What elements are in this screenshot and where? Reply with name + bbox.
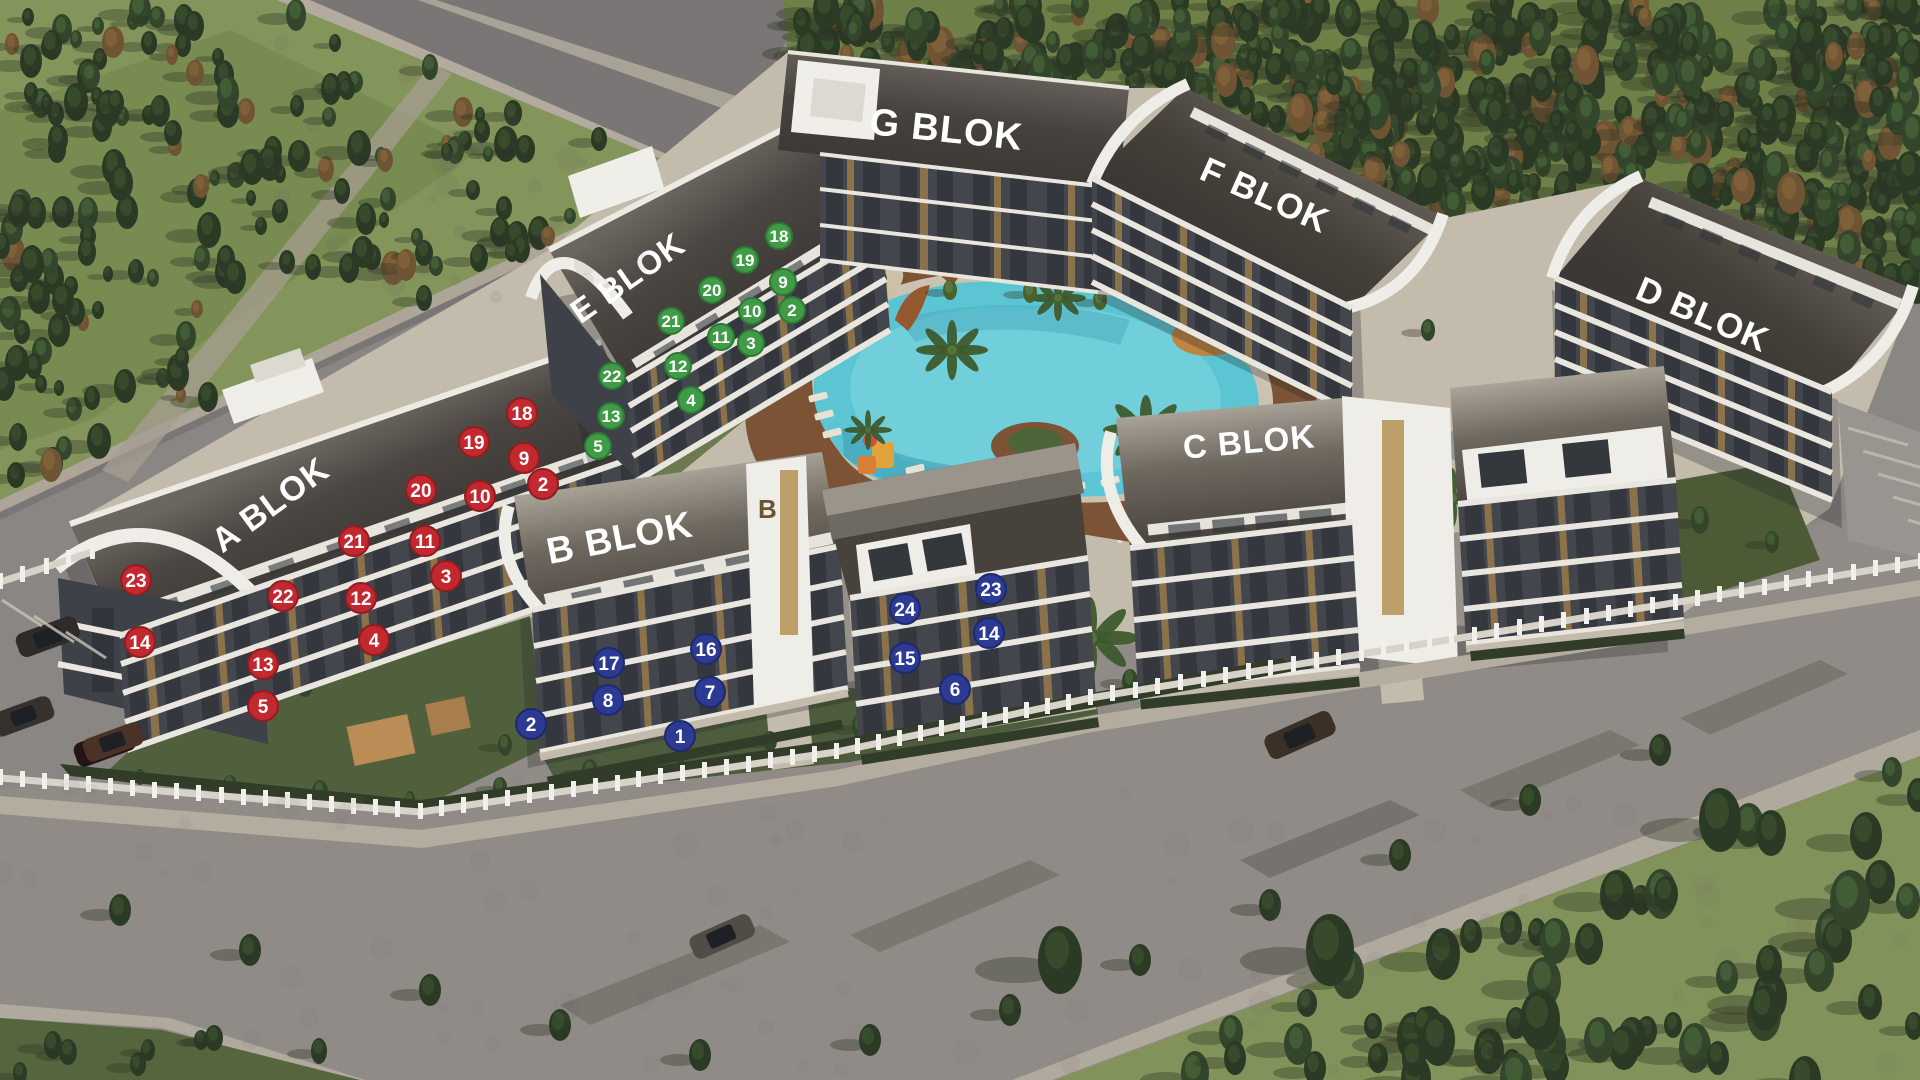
svg-text:14: 14	[129, 633, 151, 654]
svg-text:11: 11	[415, 532, 436, 553]
svg-text:4: 4	[369, 631, 380, 652]
svg-text:16: 16	[695, 640, 716, 661]
svg-text:9: 9	[519, 449, 530, 470]
svg-text:18: 18	[511, 404, 532, 425]
svg-text:10: 10	[469, 487, 490, 508]
svg-text:20: 20	[703, 281, 722, 300]
svg-text:2: 2	[526, 715, 537, 736]
svg-text:11: 11	[712, 328, 730, 347]
svg-text:5: 5	[258, 697, 269, 718]
svg-text:21: 21	[662, 312, 681, 331]
svg-text:12: 12	[350, 589, 371, 610]
svg-text:2: 2	[787, 301, 796, 320]
svg-text:19: 19	[463, 433, 484, 454]
svg-text:4: 4	[686, 391, 696, 410]
svg-text:9: 9	[778, 273, 787, 292]
svg-text:19: 19	[736, 251, 755, 270]
svg-text:24: 24	[894, 600, 916, 621]
svg-text:14: 14	[978, 624, 1000, 645]
svg-text:17: 17	[598, 654, 619, 675]
svg-text:1: 1	[675, 727, 686, 748]
svg-text:22: 22	[272, 587, 293, 608]
svg-text:20: 20	[410, 481, 431, 502]
svg-text:3: 3	[441, 567, 452, 588]
svg-text:13: 13	[252, 655, 273, 676]
svg-text:22: 22	[603, 367, 622, 386]
svg-text:7: 7	[705, 683, 716, 704]
svg-text:5: 5	[593, 437, 602, 456]
svg-text:3: 3	[746, 334, 755, 353]
svg-text:21: 21	[343, 532, 365, 553]
svg-text:2: 2	[538, 475, 549, 496]
svg-text:15: 15	[894, 649, 916, 670]
svg-text:8: 8	[603, 691, 614, 712]
svg-text:B: B	[758, 494, 777, 524]
svg-text:23: 23	[125, 571, 146, 592]
svg-text:12: 12	[669, 357, 688, 376]
svg-text:6: 6	[950, 680, 961, 701]
svg-text:23: 23	[980, 580, 1001, 601]
svg-text:18: 18	[770, 227, 789, 246]
svg-text:10: 10	[743, 302, 762, 321]
svg-text:13: 13	[602, 407, 621, 426]
